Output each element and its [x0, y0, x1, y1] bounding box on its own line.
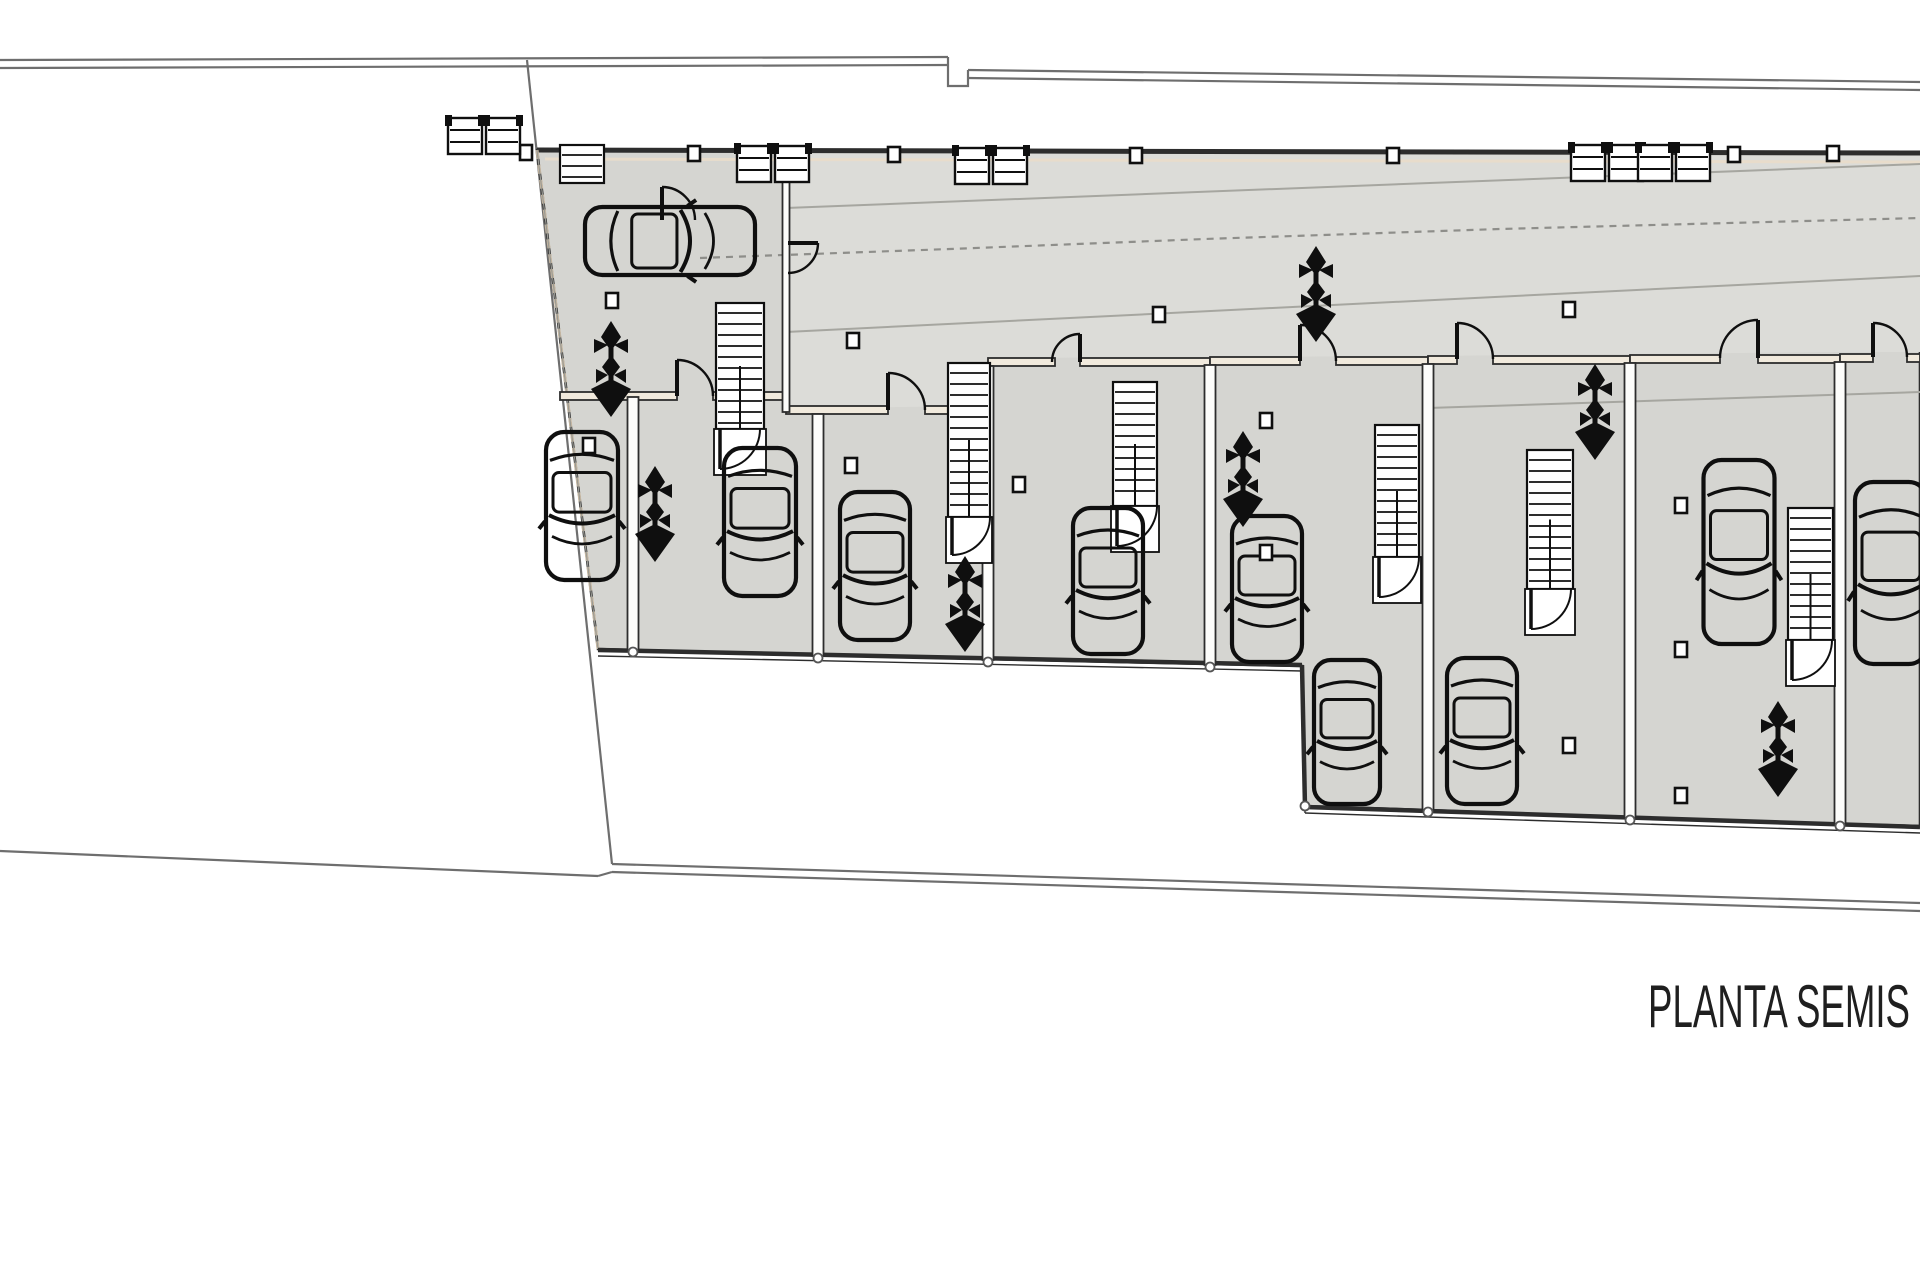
vent-cap-left [1568, 142, 1575, 153]
south-boundary-right-outer [612, 864, 1920, 903]
vent-frame [448, 118, 482, 154]
south-boundary-left [0, 851, 598, 876]
unit-partition-wall [783, 155, 790, 412]
vent-cap-right [1023, 145, 1030, 156]
column [1387, 148, 1399, 163]
wall-junction-marker [1424, 808, 1433, 817]
south-boundary-jog [598, 872, 612, 876]
vent-frame [1571, 145, 1605, 181]
unit-partition-wall [628, 397, 639, 650]
vent-cap-left [483, 115, 490, 126]
column [1260, 545, 1272, 560]
vent-frame [1676, 145, 1710, 181]
vent-grille [952, 145, 992, 184]
column [888, 147, 900, 162]
bay-front-wall [1758, 355, 1840, 363]
vent-frame [737, 146, 771, 182]
stair-symbol [1111, 382, 1159, 552]
bay-front-wall [1210, 357, 1300, 365]
floor-plan-page: PLANTA SEMIS [0, 0, 1920, 1280]
south-boundary-right-inner [612, 872, 1920, 911]
vent-grille [990, 145, 1030, 184]
column [1013, 477, 1025, 492]
bay-front-wall [1907, 354, 1920, 362]
bay-front-wall [1840, 354, 1873, 362]
column [1675, 642, 1687, 657]
stair-symbol [1373, 425, 1421, 603]
stair-symbol [1786, 508, 1835, 686]
vent-cap-left [990, 145, 997, 156]
vent-grille [1673, 142, 1713, 181]
bay-front-wall [1493, 356, 1630, 364]
vent-cap-right [805, 143, 812, 154]
column [688, 146, 700, 161]
vent-frame [955, 148, 989, 184]
bay-front-wall [1428, 356, 1457, 364]
wall-junction-marker [1206, 663, 1215, 672]
vent-grille [1568, 142, 1608, 181]
vent-cap-left [445, 115, 452, 126]
column [845, 458, 857, 473]
column [520, 145, 532, 160]
unit-partition-wall [1423, 364, 1434, 810]
column [1827, 146, 1839, 161]
wall-junction-marker [629, 648, 638, 657]
column [583, 438, 595, 453]
bay-front-wall [1336, 357, 1428, 365]
wall-junction-marker [1626, 816, 1635, 825]
wall-junction-marker [814, 654, 823, 663]
vent-grille [734, 143, 774, 182]
top-boundary-notch [948, 57, 968, 86]
bay-front-wall [988, 358, 1055, 366]
stair-symbol [946, 363, 992, 563]
column [1675, 498, 1687, 513]
vent-cap-left [772, 143, 779, 154]
floor-plan-canvas: PLANTA SEMIS [0, 0, 1920, 1280]
stair-symbol [560, 145, 604, 183]
column [1260, 413, 1272, 428]
vent-frame [486, 118, 520, 154]
column [1675, 788, 1687, 803]
vent-grille [772, 143, 812, 182]
vent-cap-left [1606, 142, 1613, 153]
vent-grille [1635, 142, 1675, 181]
vent-cap-right [1706, 142, 1713, 153]
unit-partition-wall [1835, 362, 1846, 824]
vent-frame [775, 146, 809, 182]
column [1728, 147, 1740, 162]
vent-grille [483, 115, 523, 154]
top-boundary-inner [0, 65, 948, 68]
vent-cap-left [952, 145, 959, 156]
vent-grille [445, 115, 485, 154]
column [847, 333, 859, 348]
unit-partition-wall [1205, 365, 1216, 665]
wall-junction-marker [984, 658, 993, 667]
stair-symbol [1525, 450, 1575, 635]
bay-front-wall [1080, 358, 1210, 366]
unit-partition-wall [1625, 363, 1636, 818]
column [606, 293, 618, 308]
plan-title: PLANTA SEMIS [1648, 973, 1910, 1040]
column [1563, 738, 1575, 753]
vent-cap-left [734, 143, 741, 154]
column [1563, 302, 1575, 317]
vent-cap-left [1673, 142, 1680, 153]
column [1153, 307, 1165, 322]
bay-front-wall [786, 406, 888, 414]
vent-cap-left [1635, 142, 1642, 153]
bay-front-wall [1630, 355, 1720, 363]
wall-junction-marker [1836, 822, 1845, 831]
vent-frame [993, 148, 1027, 184]
top-boundary-outer [0, 57, 948, 60]
vent-frame [1638, 145, 1672, 181]
unit-partition-wall [813, 414, 824, 656]
column [1130, 148, 1142, 163]
wall-junction-marker [1301, 802, 1310, 811]
vent-cap-right [516, 115, 523, 126]
